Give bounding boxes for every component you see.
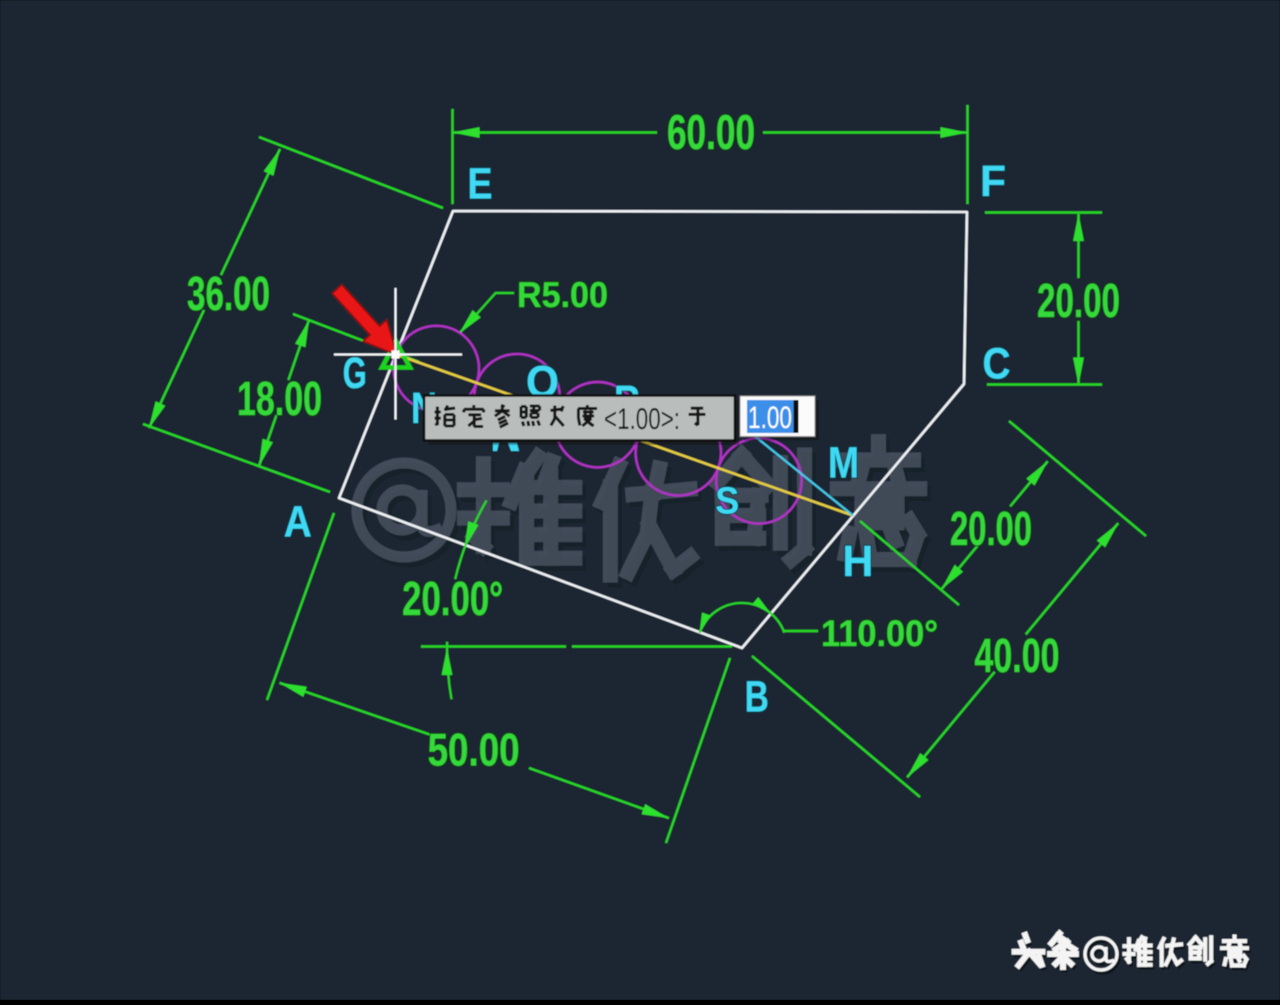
- svg-text:R5.00: R5.00: [517, 274, 608, 315]
- svg-text:G: G: [343, 349, 367, 398]
- svg-text:C: C: [983, 340, 1011, 389]
- svg-text:F: F: [980, 157, 1006, 206]
- svg-text:E: E: [468, 160, 493, 209]
- svg-text:A: A: [284, 498, 312, 547]
- svg-text:20.00: 20.00: [950, 503, 1032, 556]
- svg-text:1.00: 1.00: [748, 400, 792, 435]
- svg-text:110.00°: 110.00°: [821, 613, 938, 654]
- svg-text:20.00°: 20.00°: [402, 573, 503, 626]
- svg-text:18.00: 18.00: [237, 373, 322, 426]
- svg-text:H: H: [842, 537, 873, 586]
- svg-text:M: M: [828, 439, 859, 488]
- svg-text:20.00: 20.00: [1037, 275, 1120, 328]
- svg-text:50.00: 50.00: [428, 724, 520, 776]
- svg-text:60.00: 60.00: [667, 106, 755, 160]
- svg-text:S: S: [715, 481, 739, 523]
- svg-text:B: B: [745, 672, 769, 721]
- svg-text:36.00: 36.00: [187, 268, 270, 321]
- svg-text:<1.00>:: <1.00>:: [604, 403, 680, 436]
- svg-text:40.00: 40.00: [975, 630, 1060, 683]
